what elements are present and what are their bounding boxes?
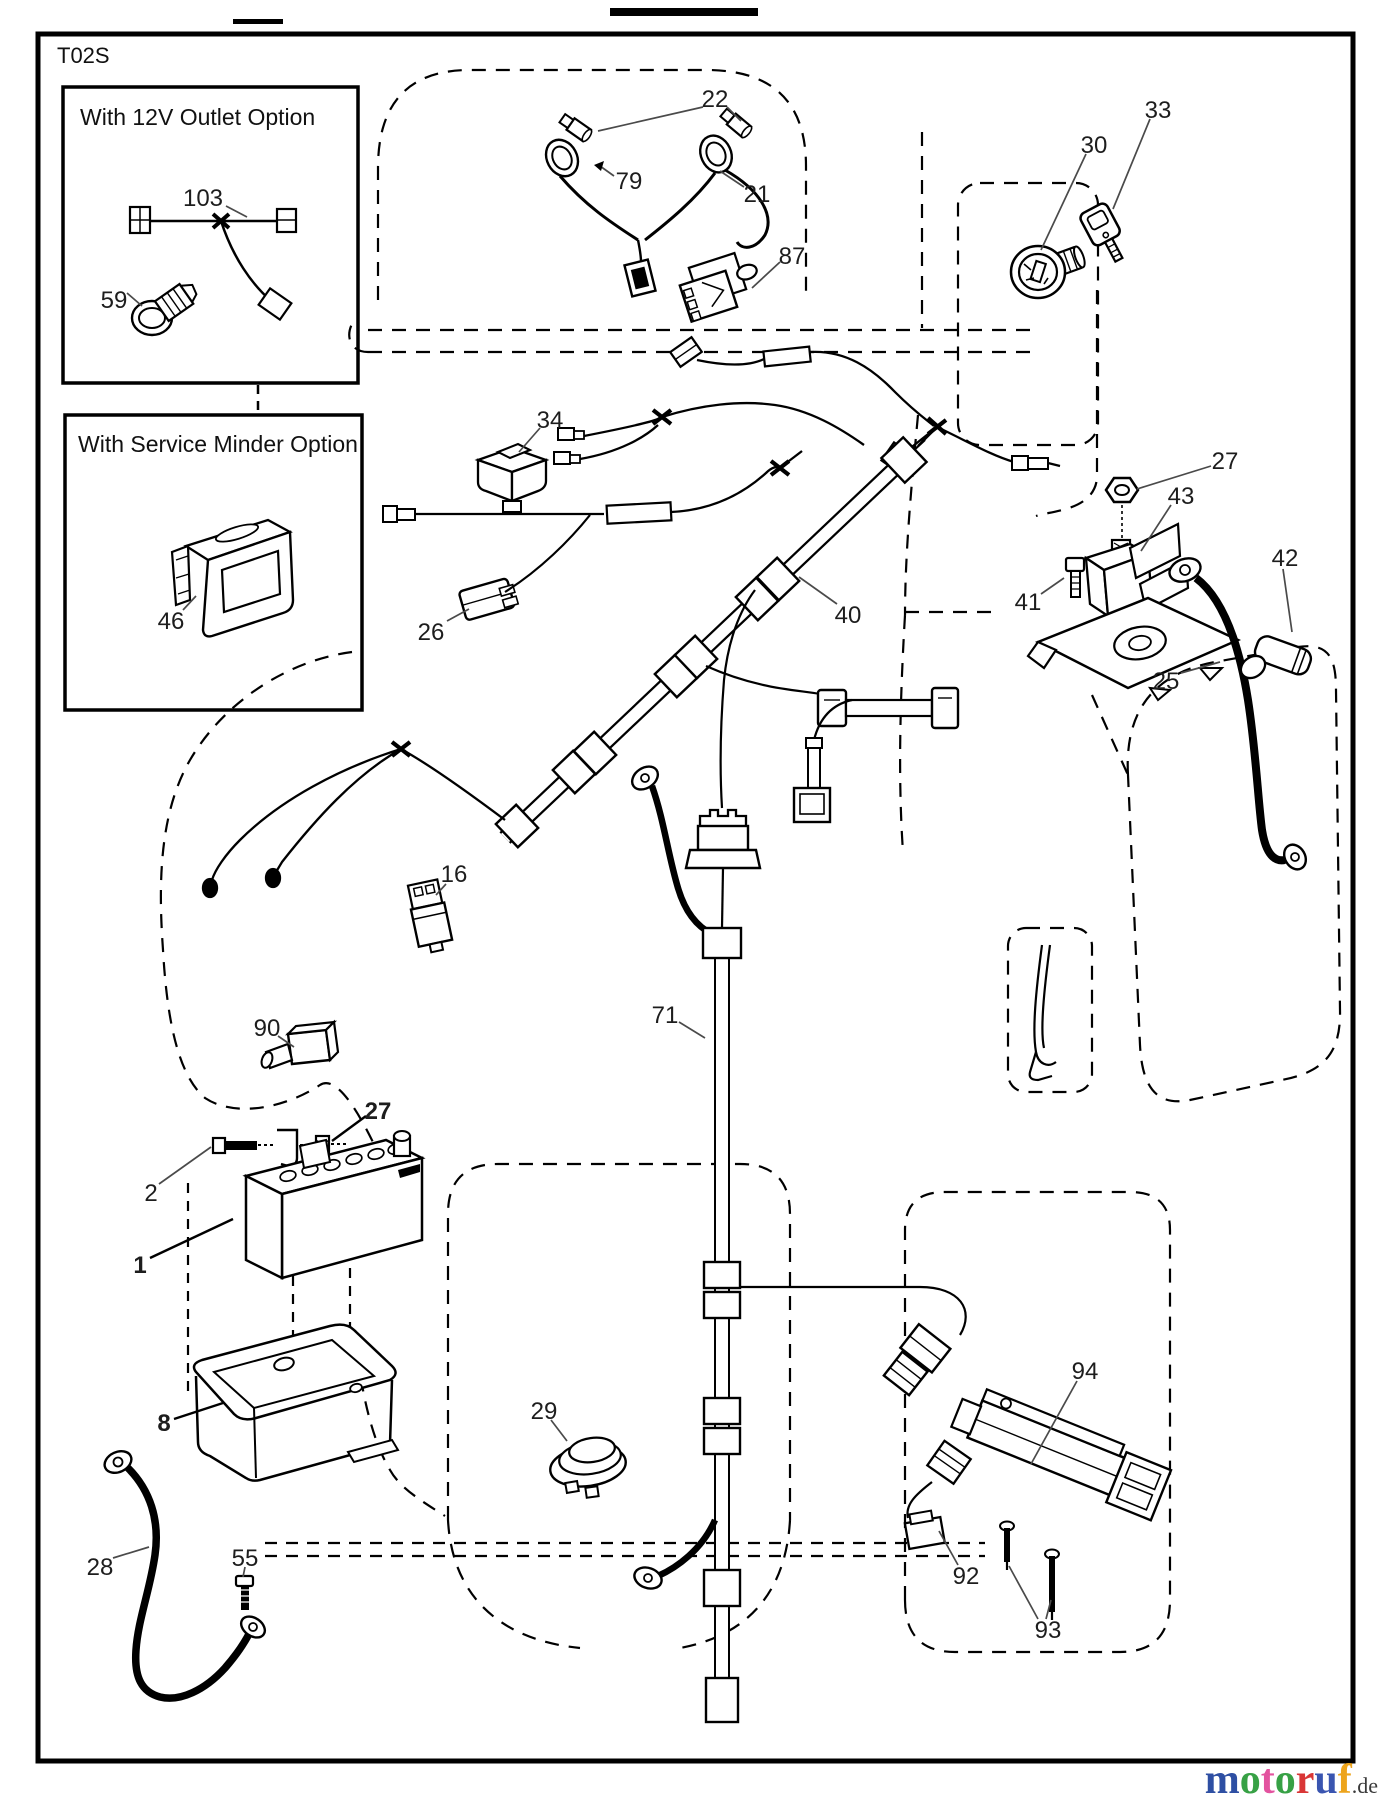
battery-bolt-2	[213, 1138, 225, 1153]
part-label-21: 21	[744, 181, 771, 208]
fuse-holder-26-drawing	[459, 515, 590, 621]
registration-mark	[233, 19, 283, 24]
part-label-103: 103	[183, 185, 223, 212]
arrowhead	[594, 161, 604, 171]
part-label-33: 33	[1145, 97, 1172, 124]
vertical-harness-71	[631, 928, 965, 1722]
electrical-parts-diagram: T02S With 12V Outlet Option	[0, 0, 1393, 1800]
switch-16-drawing	[406, 879, 454, 955]
part-label-59: 59	[101, 287, 128, 314]
lever-hook	[1030, 945, 1056, 1080]
hourmeter-94-drawing	[947, 1382, 1173, 1520]
part-label-28: 28	[87, 1554, 114, 1581]
headlight-bulb-left	[558, 113, 593, 143]
main-harness-40	[496, 437, 927, 847]
fender-line-right	[1036, 290, 1097, 516]
part-label-90: 90	[254, 1015, 281, 1042]
registration-mark	[610, 8, 758, 16]
part-label-1: 1	[133, 1252, 146, 1279]
rear-axle-lines	[265, 1543, 985, 1556]
key-33-drawing	[1078, 202, 1132, 267]
hourmeter-cluster	[903, 1382, 1173, 1620]
part-label-92: 92	[953, 1563, 980, 1590]
inset-service-minder-option: With Service Minder Option	[65, 415, 362, 710]
battery-box-8-drawing	[194, 1325, 398, 1481]
service-minder-46-drawing	[172, 520, 293, 636]
part-label-79: 79	[616, 168, 643, 195]
bolt-55-drawing	[236, 1576, 253, 1610]
part-label-71: 71	[652, 1002, 679, 1029]
right-fender-outline	[1128, 646, 1340, 1101]
part-label-30: 30	[1081, 132, 1108, 159]
outlet-59-drawing	[132, 278, 201, 335]
part-label-55: 55	[232, 1545, 259, 1572]
harness-plug-right	[881, 1324, 951, 1397]
part-label-43: 43	[1168, 483, 1195, 510]
relay-87-drawing	[675, 248, 765, 322]
solenoid-43-drawing	[1028, 524, 1238, 700]
ignition-switch-30-drawing	[1011, 245, 1087, 298]
grommet-29-drawing	[548, 1435, 629, 1498]
part-label-34: 34	[537, 407, 564, 434]
fender-link	[1092, 695, 1128, 775]
part-label-25: 25	[1153, 668, 1180, 695]
part-label-8: 8	[157, 1410, 170, 1437]
part-label-94: 94	[1072, 1358, 1099, 1385]
part-label-93: 93	[1035, 1617, 1062, 1644]
part-label-2: 2	[144, 1180, 157, 1207]
terminal-boot-42-drawing	[1237, 634, 1314, 683]
nut-27-drawing	[1106, 478, 1138, 502]
inset-title-12v: With 12V Outlet Option	[80, 104, 315, 130]
switch-34-drawing	[478, 444, 546, 512]
part-label-27: 27	[365, 1098, 392, 1125]
part-label-40: 40	[835, 602, 862, 629]
part-label-26: 26	[418, 619, 445, 646]
battery-1-drawing	[246, 1131, 422, 1278]
part-label-87: 87	[779, 243, 806, 270]
dash-switch-panel	[958, 183, 1098, 445]
console-outline	[900, 415, 1000, 852]
part-label-42: 42	[1272, 545, 1299, 572]
diagram-code: T02S	[57, 43, 110, 68]
part-label-46: 46	[158, 608, 185, 635]
left-panel-outline	[161, 652, 385, 1168]
connector-92-drawing	[903, 1441, 970, 1549]
battery-group	[194, 1130, 422, 1481]
part-label-22: 22	[702, 86, 729, 113]
part-label-27: 27	[1212, 448, 1239, 475]
hold-down-bracket	[277, 1130, 297, 1166]
bolt-41-drawing	[1066, 558, 1084, 597]
part-label-41: 41	[1015, 589, 1042, 616]
part-label-16: 16	[441, 861, 468, 888]
part-label-29: 29	[531, 1398, 558, 1425]
inset-title-service-minder: With Service Minder Option	[78, 431, 358, 457]
branch-connectors	[706, 666, 958, 822]
parts-diagram-page: T02S With 12V Outlet Option	[0, 0, 1393, 1800]
inset-12v-outlet-option: With 12V Outlet Option	[63, 87, 358, 383]
